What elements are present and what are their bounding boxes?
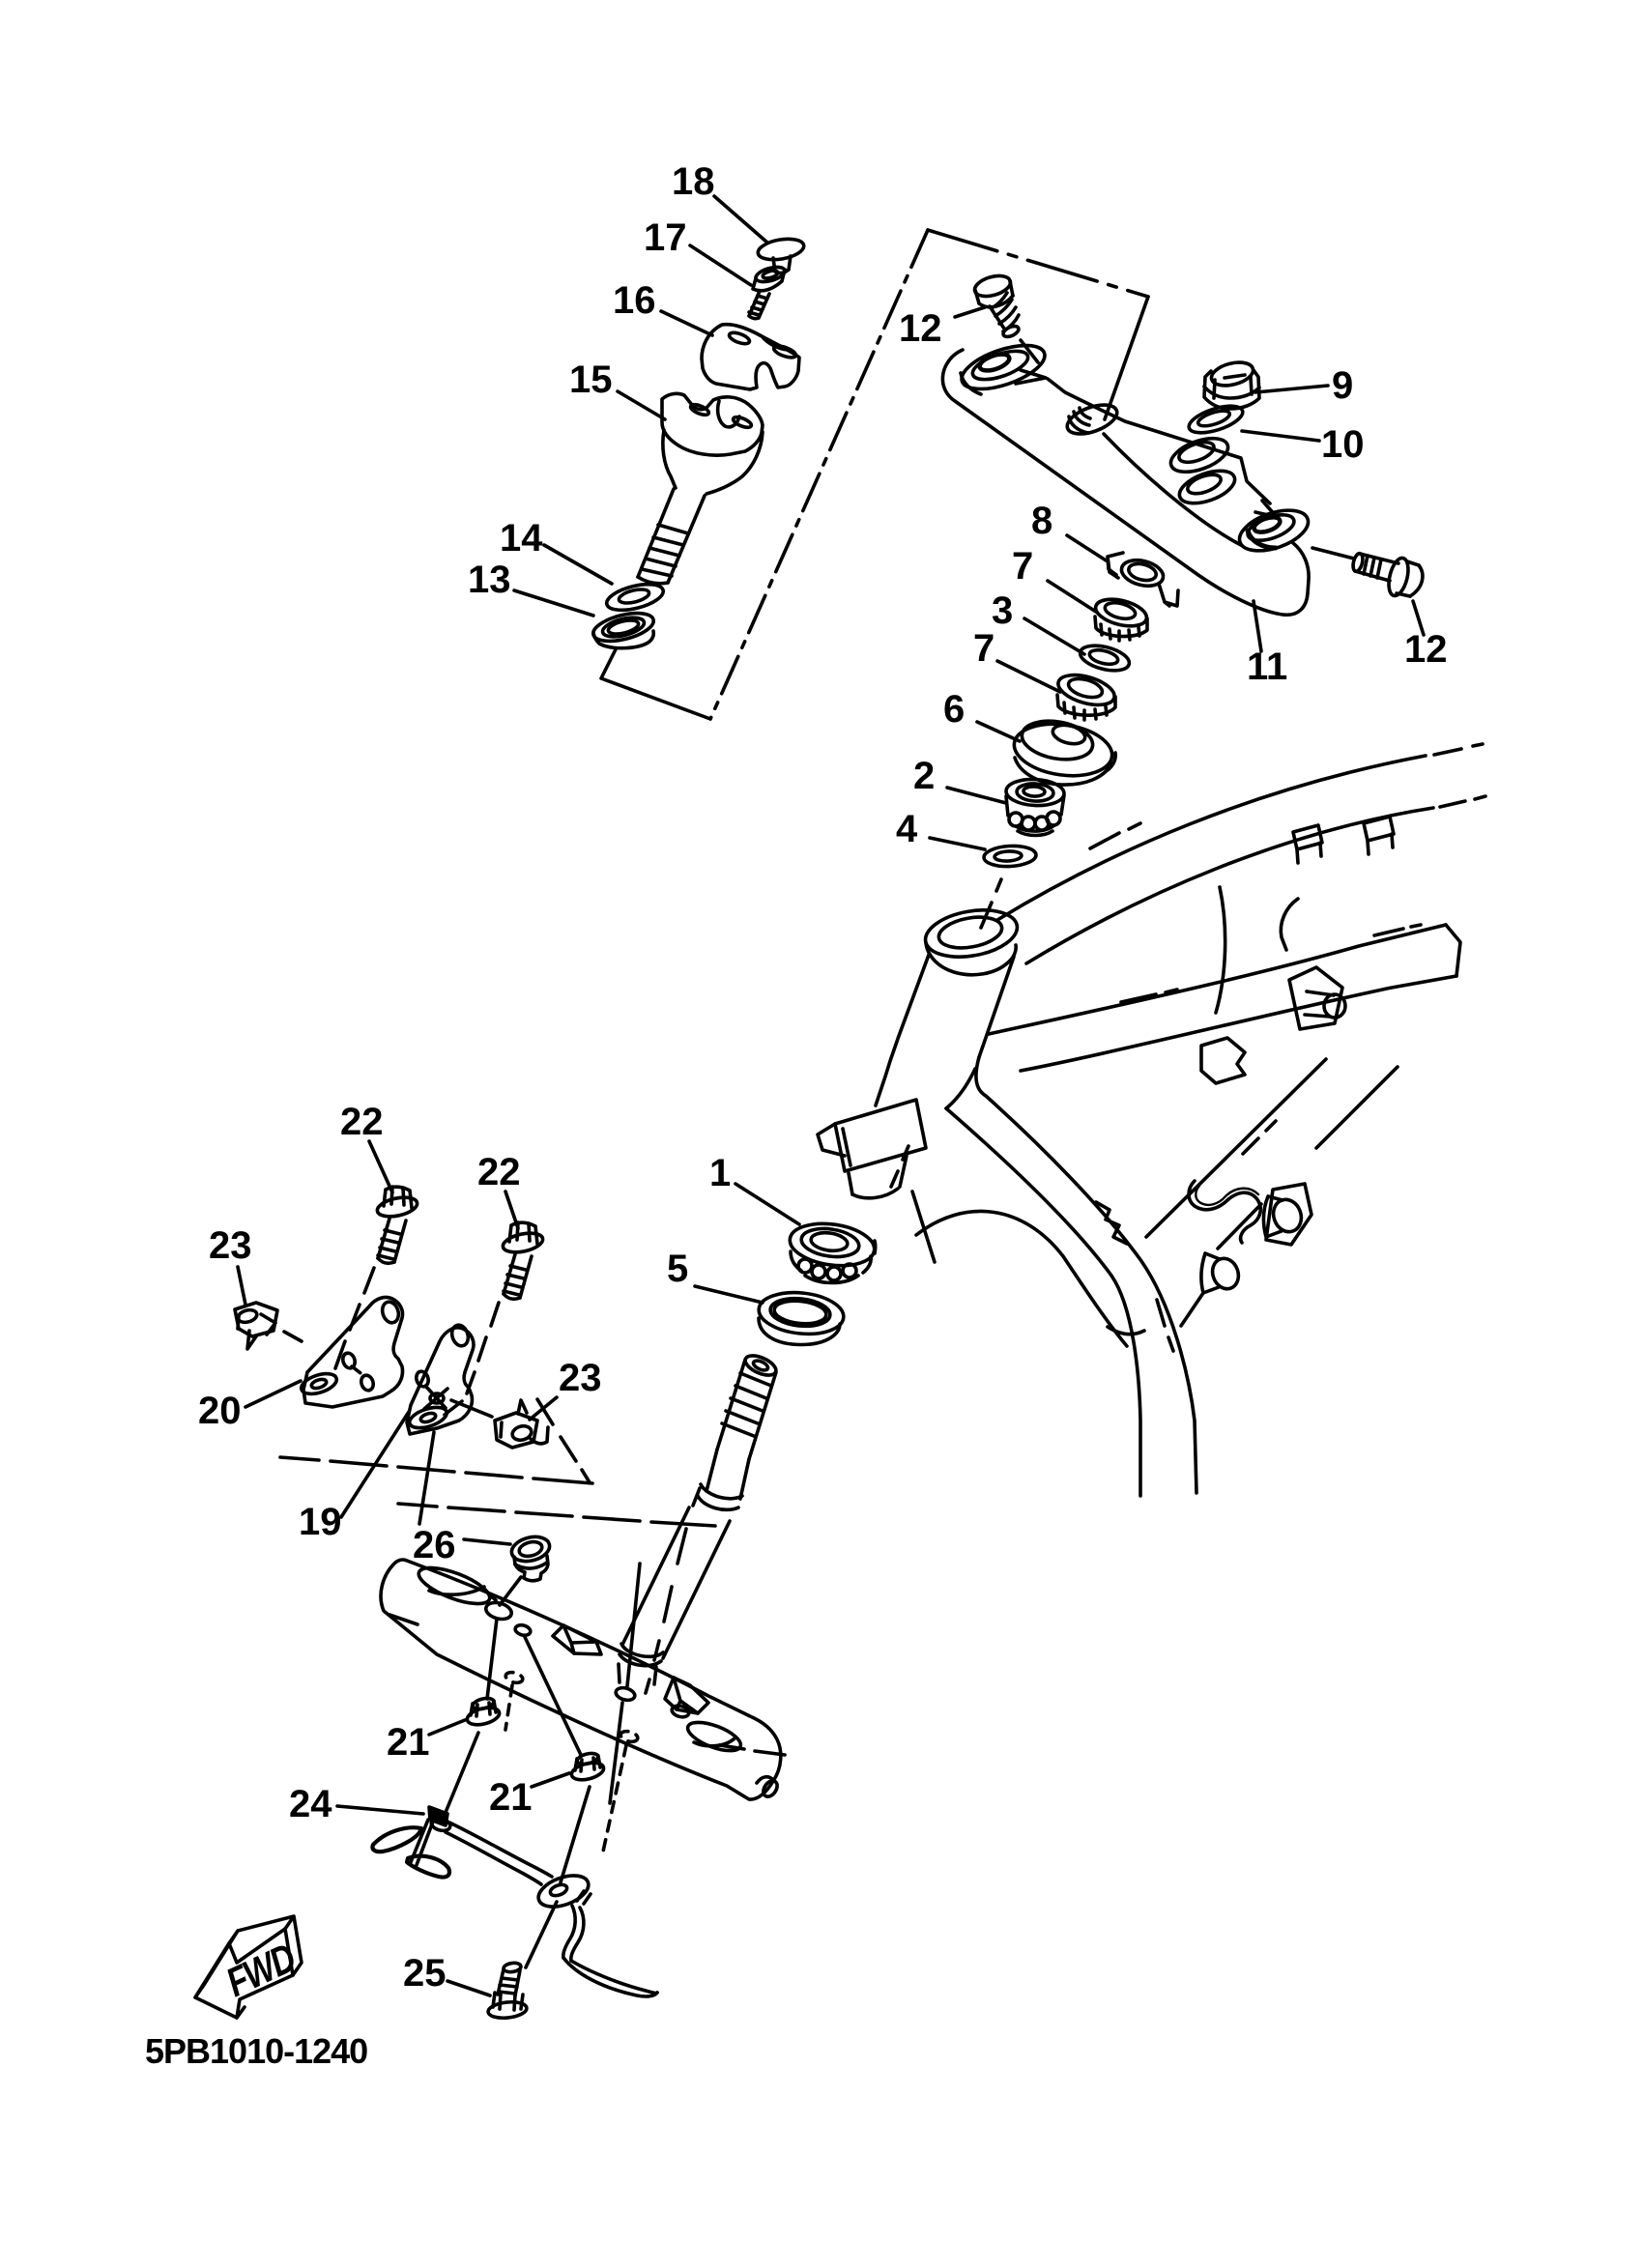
svg-text:4: 4: [896, 808, 918, 850]
svg-text:11: 11: [1247, 646, 1287, 688]
svg-text:14: 14: [500, 517, 543, 560]
svg-text:18: 18: [672, 160, 715, 203]
svg-text:7: 7: [973, 627, 994, 670]
svg-text:22: 22: [477, 1151, 521, 1193]
svg-text:25: 25: [403, 1952, 447, 1995]
svg-text:17: 17: [644, 216, 687, 259]
svg-text:15: 15: [569, 359, 613, 401]
svg-text:21: 21: [387, 1721, 430, 1764]
svg-text:22: 22: [340, 1101, 384, 1143]
svg-text:7: 7: [1012, 545, 1033, 588]
svg-text:3: 3: [992, 589, 1013, 632]
svg-text:6: 6: [943, 688, 965, 731]
svg-text:20: 20: [198, 1390, 242, 1432]
svg-text:2: 2: [913, 755, 935, 797]
svg-text:21: 21: [489, 1776, 533, 1819]
svg-text:8: 8: [1031, 500, 1052, 542]
svg-text:12: 12: [899, 307, 942, 350]
svg-text:23: 23: [209, 1224, 252, 1267]
svg-text:24: 24: [289, 1783, 332, 1825]
svg-text:1: 1: [709, 1152, 731, 1194]
svg-text:23: 23: [559, 1357, 602, 1399]
svg-text:19: 19: [299, 1501, 342, 1543]
svg-text:5PB1010-1240: 5PB1010-1240: [145, 2031, 367, 2071]
svg-text:12: 12: [1404, 628, 1448, 671]
svg-text:10: 10: [1321, 423, 1365, 466]
svg-text:9: 9: [1332, 364, 1353, 407]
svg-text:26: 26: [413, 1524, 456, 1566]
svg-text:5: 5: [667, 1248, 688, 1290]
svg-text:13: 13: [468, 559, 511, 601]
svg-text:16: 16: [613, 279, 656, 322]
